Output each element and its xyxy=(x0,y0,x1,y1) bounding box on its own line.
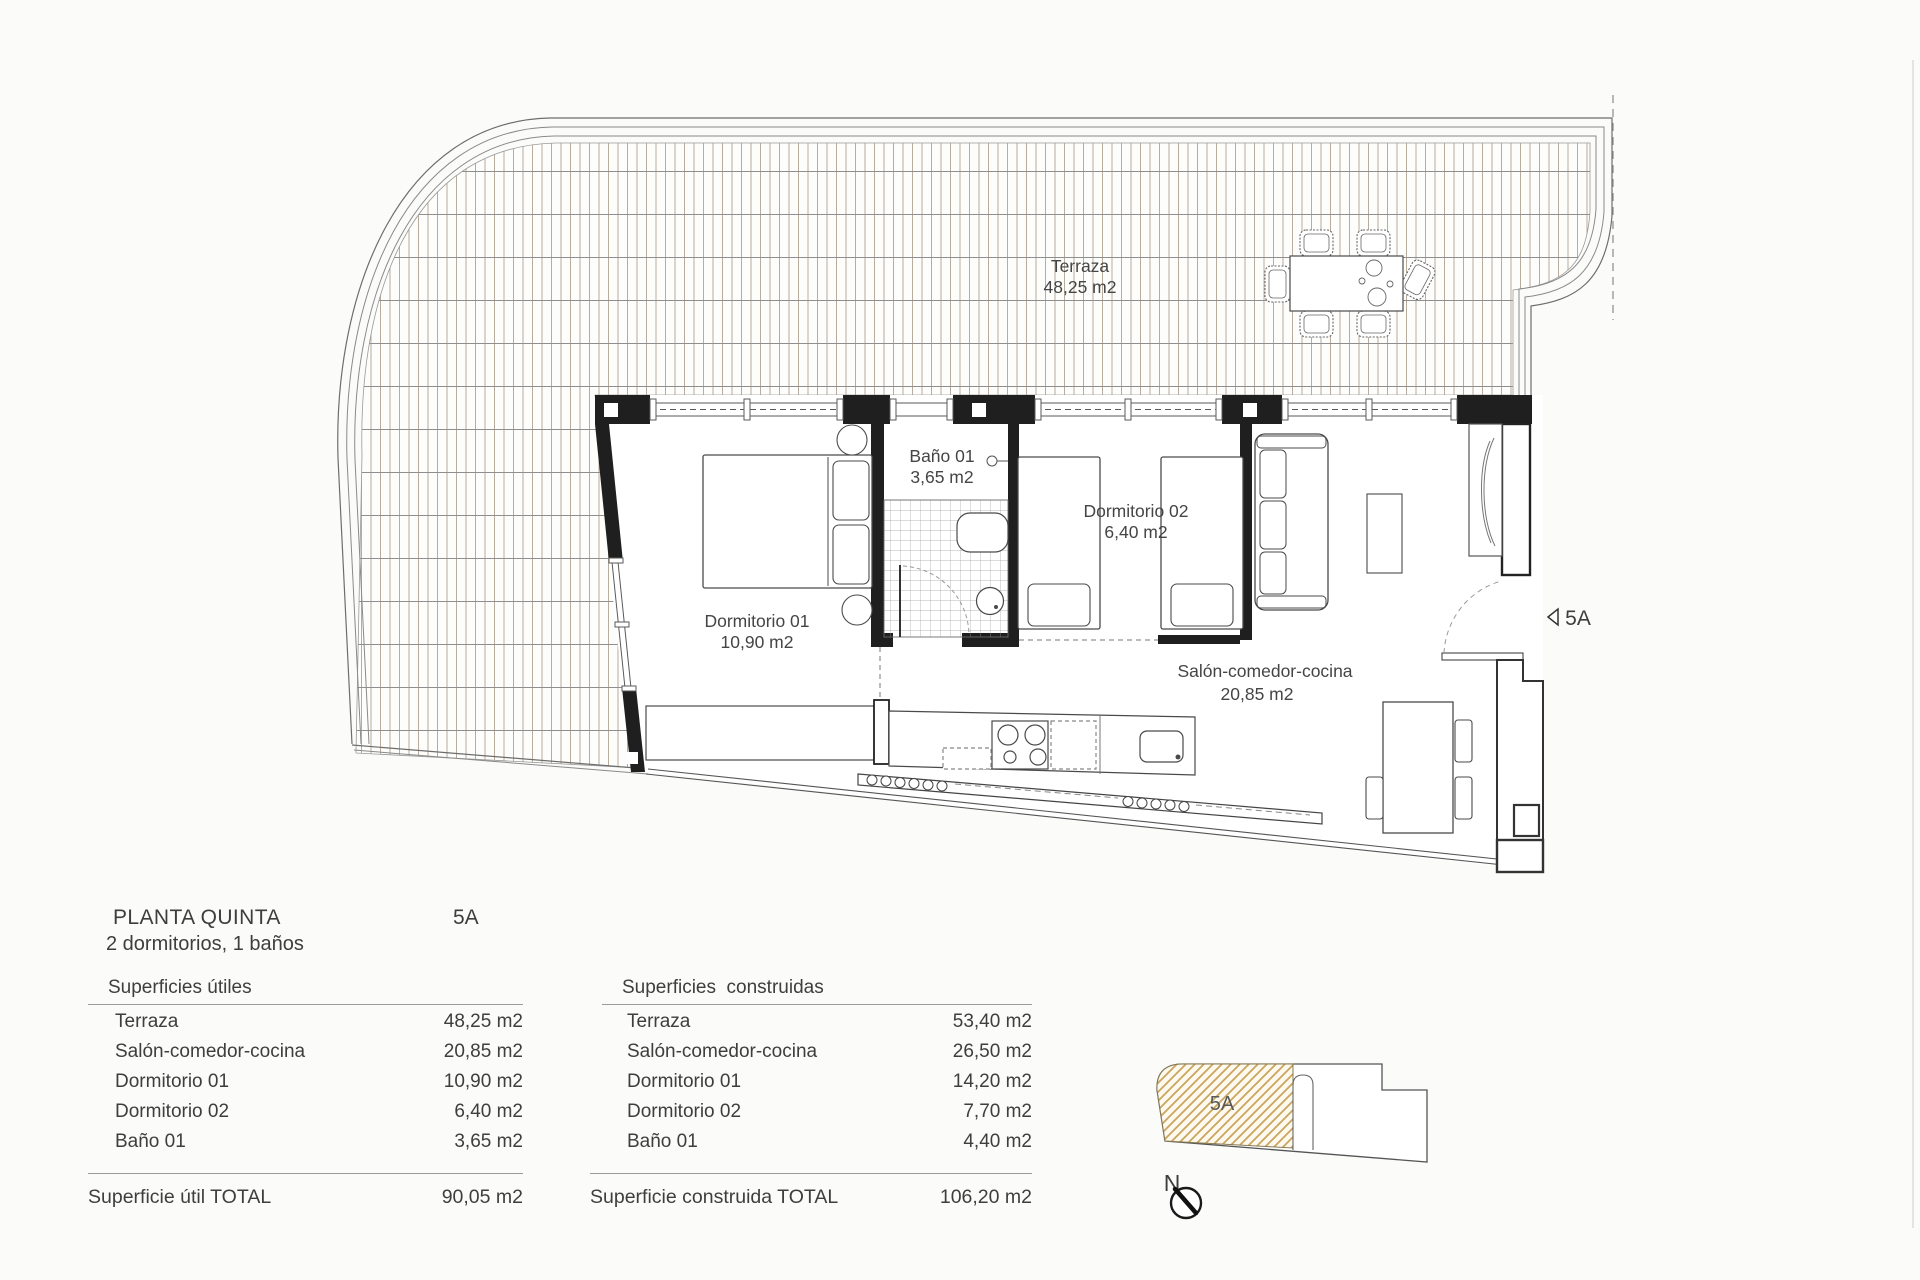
table-row: Dormitorio 02 7,70 m2 xyxy=(590,1097,1032,1127)
hall-wardrobe xyxy=(1469,424,1502,556)
entrance-arrow-icon xyxy=(1548,609,1558,625)
living-label: Salón-comedor-cocina xyxy=(1177,661,1352,681)
pillow xyxy=(833,461,869,520)
bathroom-area: 3,65 m2 xyxy=(910,467,973,487)
table-row: Terraza 53,40 m2 xyxy=(590,1007,1032,1037)
nightstand xyxy=(842,595,872,625)
table-rule xyxy=(602,1004,1032,1005)
entrance-label: 5A xyxy=(1565,607,1591,630)
pillow xyxy=(1171,584,1233,626)
row-value: 26,50 m2 xyxy=(953,1037,1032,1067)
row-value: 4,40 m2 xyxy=(963,1127,1032,1157)
bathtub xyxy=(957,513,1008,552)
hob-burner xyxy=(1030,749,1046,765)
bathroom-label: Baño 01 xyxy=(909,446,974,466)
table-rule xyxy=(88,1173,523,1174)
entrance-door-leaf xyxy=(1442,653,1523,660)
row-value: 53,40 m2 xyxy=(953,1007,1032,1037)
north-indicator: N xyxy=(1164,1170,1201,1218)
row-label: Salón-comedor-cocina xyxy=(627,1037,817,1067)
total-value: 106,20 m2 xyxy=(940,1182,1032,1212)
row-label: Dormitorio 02 xyxy=(627,1097,741,1127)
row-value: 7,70 m2 xyxy=(963,1097,1032,1127)
page-title: PLANTA QUINTA xyxy=(113,906,281,930)
terrace-area: 48,25 m2 xyxy=(1044,277,1117,297)
row-value: 3,65 m2 xyxy=(454,1127,523,1157)
built-areas-table: Superficies construidas Terraza 53,40 m2… xyxy=(590,975,1032,1212)
under-counter-appliance xyxy=(1051,721,1096,769)
row-label: Terraza xyxy=(115,1007,178,1037)
hob-burner xyxy=(998,725,1018,745)
entrance-marker: 5A xyxy=(1548,607,1591,630)
dining-chair xyxy=(1455,720,1472,762)
dining-table xyxy=(1383,702,1453,833)
page-subtitle: 2 dormitorios, 1 baños xyxy=(106,933,304,956)
unit-code: 5A xyxy=(453,906,479,930)
table-row: Dormitorio 01 14,20 m2 xyxy=(590,1067,1032,1097)
table-row: Baño 01 4,40 m2 xyxy=(590,1127,1032,1157)
hob-burner xyxy=(1004,751,1016,763)
table-rule xyxy=(88,1004,523,1005)
key-plan: 5A N xyxy=(1157,1064,1427,1218)
built-areas-header: Superficies construidas xyxy=(590,975,1032,1001)
right-wall-base xyxy=(1497,840,1543,872)
coffee-table xyxy=(1367,494,1402,573)
row-label: Dormitorio 02 xyxy=(115,1097,229,1127)
table-row: Baño 01 3,65 m2 xyxy=(88,1127,523,1157)
living-area: 20,85 m2 xyxy=(1221,684,1294,704)
pillow xyxy=(1028,584,1090,626)
total-label: Superficie construida TOTAL xyxy=(590,1182,838,1212)
bedroom1-label: Dormitorio 01 xyxy=(704,611,809,631)
row-label: Terraza xyxy=(627,1007,690,1037)
dining-chair xyxy=(1366,777,1383,819)
row-label: Salón-comedor-cocina xyxy=(115,1037,305,1067)
sofa-cushion xyxy=(1260,450,1286,498)
washbasin xyxy=(977,588,1004,615)
kitchen-column xyxy=(874,700,889,764)
row-value: 48,25 m2 xyxy=(444,1007,523,1037)
key-plan-unit-label: 5A xyxy=(1210,1093,1235,1115)
bedroom2-area: 6,40 m2 xyxy=(1104,522,1167,542)
bedroom2-label: Dormitorio 02 xyxy=(1083,501,1188,521)
under-counter-appliance xyxy=(943,748,991,769)
row-label: Baño 01 xyxy=(627,1127,698,1157)
total-row: Superficie construida TOTAL 106,20 m2 xyxy=(590,1182,1032,1212)
hob-burner xyxy=(1025,725,1045,745)
terrace-label: Terraza xyxy=(1051,256,1110,276)
row-value: 10,90 m2 xyxy=(444,1067,523,1097)
bedroom1-area: 10,90 m2 xyxy=(721,632,794,652)
row-label: Dormitorio 01 xyxy=(627,1067,741,1097)
sofa-cushion xyxy=(1260,501,1286,549)
key-plan-stair-core xyxy=(1293,1075,1313,1150)
dining-chair xyxy=(1455,777,1472,819)
pillow xyxy=(833,525,869,584)
table-row: Dormitorio 02 6,40 m2 xyxy=(88,1097,523,1127)
row-label: Baño 01 xyxy=(115,1127,186,1157)
row-value: 20,85 m2 xyxy=(444,1037,523,1067)
nightstand xyxy=(837,425,867,455)
shower-head-icon xyxy=(987,456,997,466)
useful-areas-header: Superficies útiles xyxy=(88,975,523,1001)
table-rule xyxy=(590,1173,1032,1174)
row-label: Dormitorio 01 xyxy=(115,1067,229,1097)
floorplan-sheet: 5A xyxy=(0,0,1920,1280)
row-value: 6,40 m2 xyxy=(454,1097,523,1127)
total-value: 90,05 m2 xyxy=(442,1182,523,1212)
basin-drain-icon xyxy=(994,605,998,609)
kitchen-counter-left xyxy=(646,706,874,760)
terrace-table xyxy=(1290,256,1403,311)
useful-areas-table: Superficies útiles Terraza 48,25 m2 Saló… xyxy=(88,975,523,1212)
table-row: Dormitorio 01 10,90 m2 xyxy=(88,1067,523,1097)
table-row: Salón-comedor-cocina 26,50 m2 xyxy=(590,1037,1032,1067)
total-row: Superficie útil TOTAL 90,05 m2 xyxy=(88,1182,523,1212)
row-value: 14,20 m2 xyxy=(953,1067,1032,1097)
total-label: Superficie útil TOTAL xyxy=(88,1182,271,1212)
sofa-cushion xyxy=(1260,552,1286,594)
table-row: Terraza 48,25 m2 xyxy=(88,1007,523,1037)
table-row: Salón-comedor-cocina 20,85 m2 xyxy=(88,1037,523,1067)
service-shaft xyxy=(1514,805,1539,836)
sink-tap-icon xyxy=(1176,755,1181,760)
